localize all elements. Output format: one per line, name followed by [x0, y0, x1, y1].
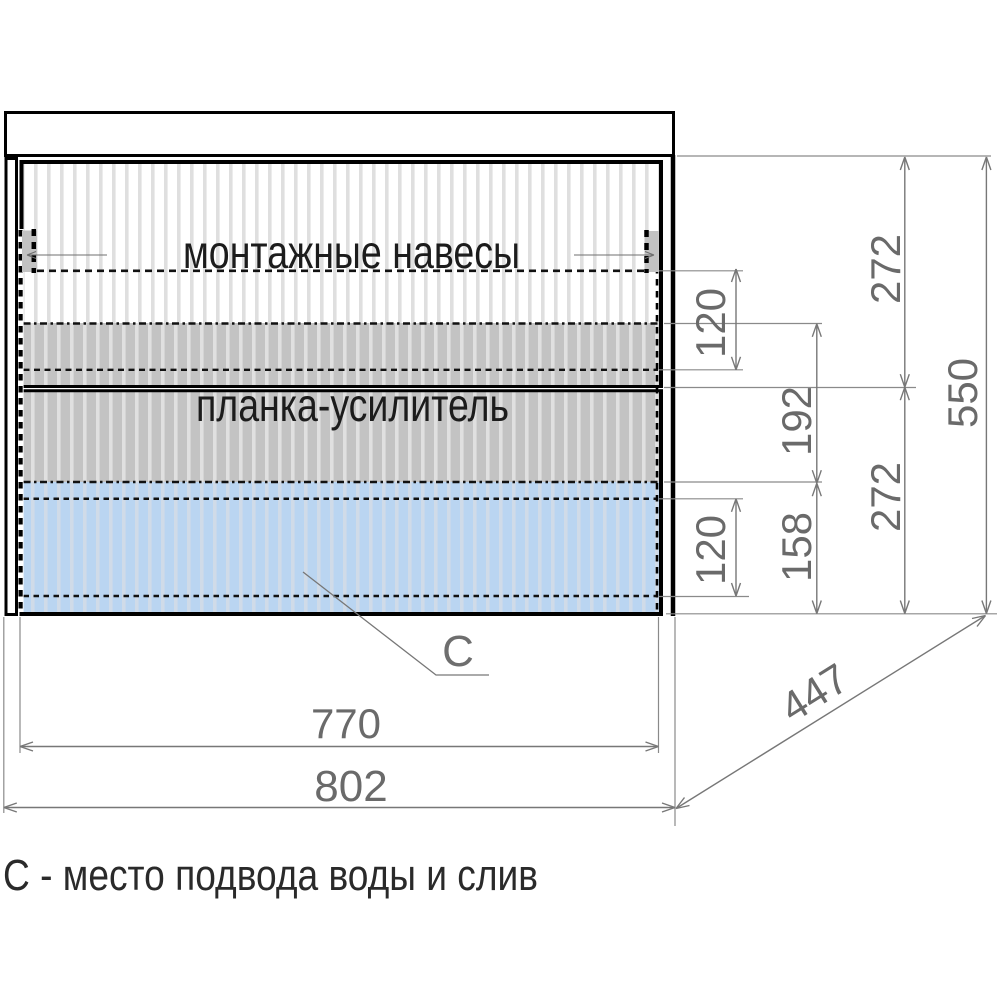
- svg-text:планка-усилитель: планка-усилитель: [196, 379, 509, 431]
- svg-text:C - место подвода воды и слив: C - место подвода воды и слив: [3, 851, 538, 900]
- svg-text:192: 192: [773, 386, 820, 456]
- svg-text:272: 272: [862, 234, 909, 304]
- svg-text:монтажные навесы: монтажные навесы: [183, 226, 520, 278]
- svg-text:C: C: [442, 627, 474, 676]
- svg-text:770: 770: [311, 700, 381, 747]
- svg-text:120: 120: [687, 515, 734, 585]
- svg-text:120: 120: [687, 288, 734, 358]
- svg-text:550: 550: [939, 358, 986, 428]
- svg-text:802: 802: [314, 762, 387, 811]
- svg-text:272: 272: [862, 462, 909, 532]
- svg-text:158: 158: [773, 512, 820, 582]
